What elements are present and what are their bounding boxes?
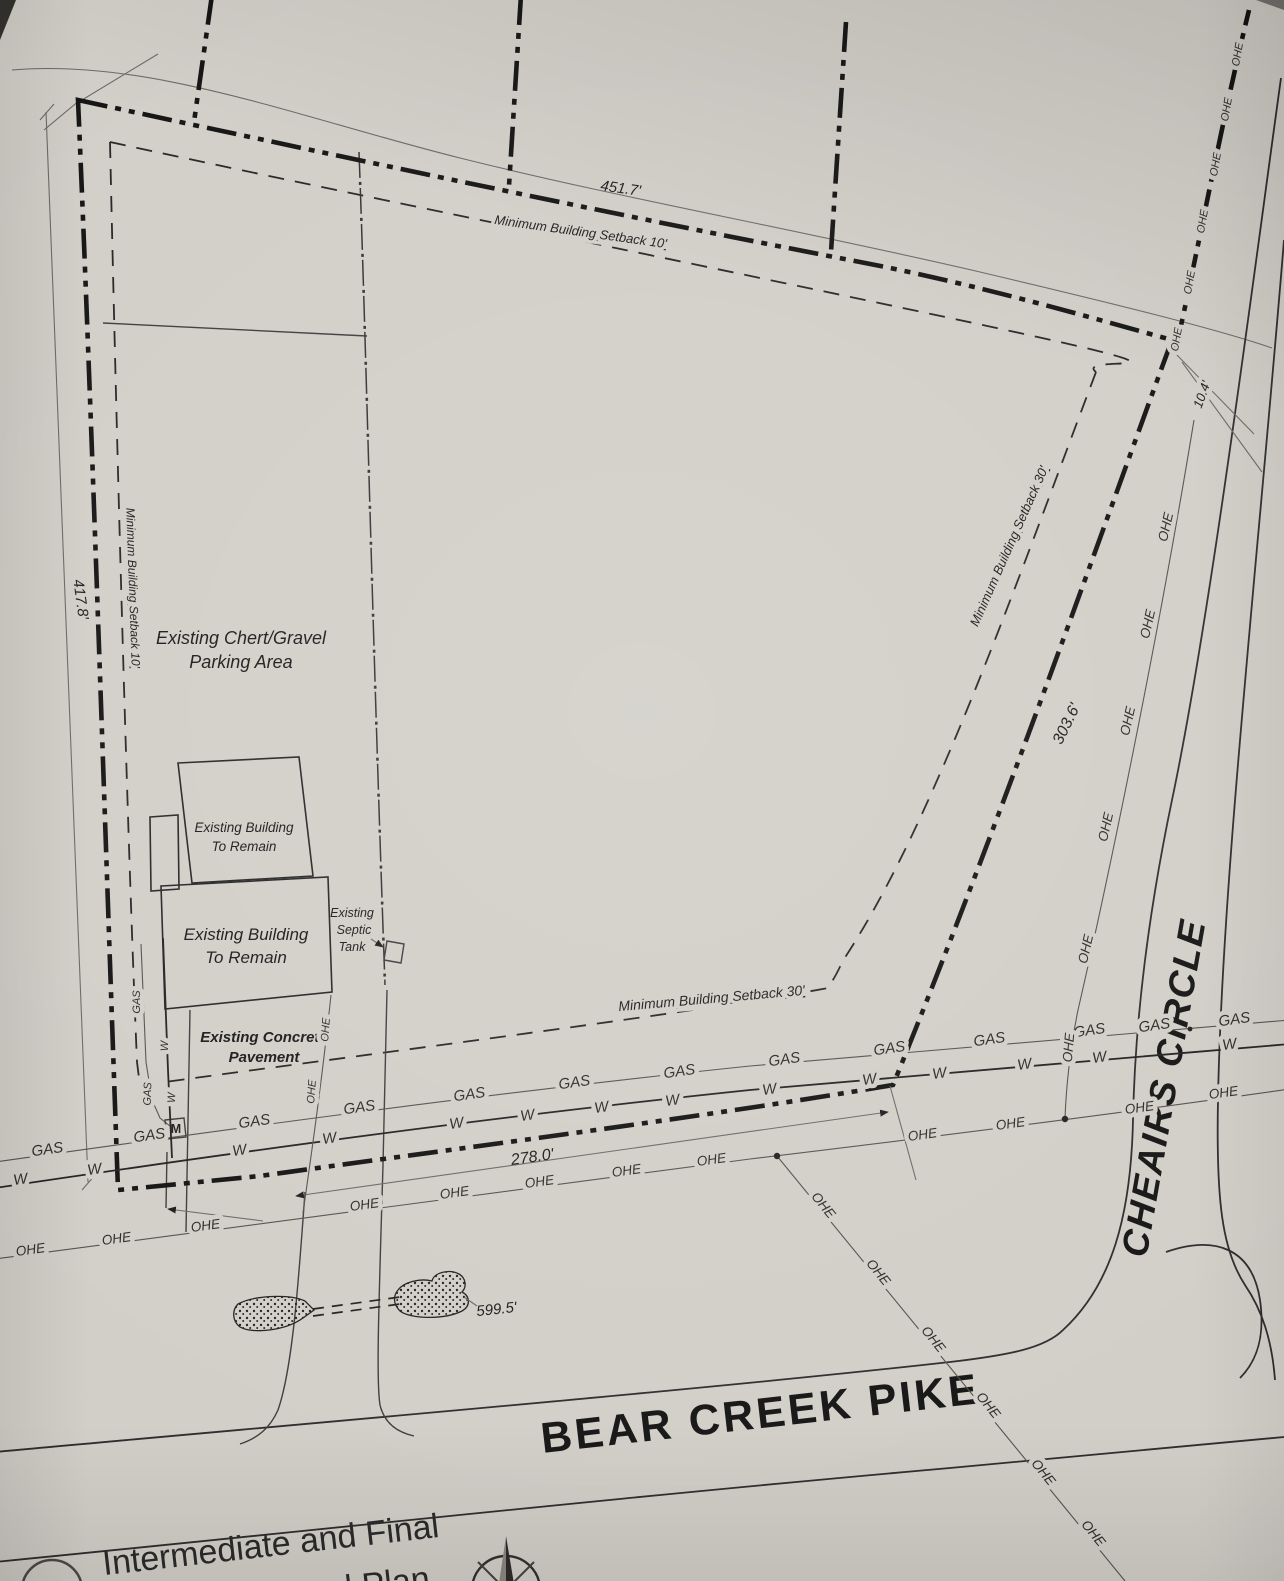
ohe-label: OHE bbox=[995, 1114, 1027, 1133]
roads: BEAR CREEK PIKE CHEAIRS CIRCLE bbox=[0, 78, 1284, 1562]
intersection-corner-curb bbox=[1166, 1245, 1262, 1378]
pavement-label-line2: Pavement bbox=[229, 1049, 301, 1066]
ohe-label: OHE bbox=[1208, 1083, 1240, 1102]
culvert-dash-line-2 bbox=[313, 1304, 400, 1316]
ohe-branch-label: OHE bbox=[808, 1189, 839, 1222]
ohe-branch-label: OHE bbox=[1028, 1456, 1059, 1489]
ohe-label: OHE bbox=[101, 1229, 133, 1248]
water-label: W bbox=[86, 1160, 104, 1179]
ohe-northeast-label: OHE bbox=[1208, 151, 1224, 177]
ohe-northeast-label: OHE bbox=[1230, 41, 1246, 67]
west-dimension: 417.8' bbox=[69, 578, 92, 621]
ohe-label: OHE bbox=[696, 1150, 728, 1169]
ohe-east-label: OHE bbox=[1095, 810, 1116, 843]
corner-dim-line-2 bbox=[1182, 362, 1262, 472]
frontage-dimension: 278.0' bbox=[509, 1146, 556, 1169]
west-dim-tick-top bbox=[40, 104, 54, 120]
photo-corner-dark bbox=[0, 0, 16, 40]
water-label: W bbox=[1091, 1048, 1109, 1067]
pavement-edge-line bbox=[186, 1010, 190, 1232]
corner-extension-line bbox=[44, 100, 80, 130]
fence-line bbox=[359, 152, 385, 985]
boundary-stub-1 bbox=[194, 0, 212, 122]
gas-fitting-dot bbox=[1188, 1027, 1193, 1032]
buildings: Existing Building To Remain Existing Bui… bbox=[150, 757, 404, 1009]
property-boundary bbox=[78, 0, 1249, 1190]
septic-label-line2: Septic bbox=[337, 923, 372, 937]
parking-label-line2: Parking Area bbox=[189, 652, 292, 672]
parking-label-line1: Existing Chert/Gravel bbox=[156, 628, 327, 648]
ohe-northeast-label: OHE bbox=[1219, 96, 1235, 122]
corner-dimension: 10.4' bbox=[1190, 378, 1214, 410]
pavement-label-line1: Existing Concrete bbox=[200, 1029, 328, 1046]
building-lower-label-line1: Existing Building bbox=[184, 925, 309, 944]
photo-corner-dark-2 bbox=[1256, 0, 1284, 10]
bear-creek-pike-north-edge bbox=[0, 78, 1281, 1452]
building-upper-label-line2: To Remain bbox=[212, 839, 277, 854]
photo-artifacts bbox=[0, 0, 1284, 40]
gas-label: GAS bbox=[973, 1029, 1007, 1050]
gas-label: GAS bbox=[663, 1061, 697, 1082]
gas-label: GAS bbox=[1073, 1020, 1107, 1041]
water-label: W bbox=[593, 1098, 611, 1117]
legend-symbol-circle bbox=[22, 1560, 82, 1581]
water-label: W bbox=[12, 1170, 30, 1189]
title-block: Intermediate and Final Control Plan bbox=[22, 1507, 540, 1581]
ohe-northeast-label: OHE bbox=[1182, 269, 1198, 295]
ohe-service-label: OHE bbox=[305, 1079, 319, 1104]
boundary-stub-3 bbox=[831, 22, 846, 252]
gas-service-label: GAS bbox=[142, 1081, 155, 1105]
gas-label: GAS bbox=[558, 1072, 592, 1093]
pavement-corner-line bbox=[166, 1152, 167, 1208]
ohe-northeast-label: OHE bbox=[1169, 326, 1185, 352]
contour-line bbox=[12, 68, 1272, 348]
setback-label-south: Minimum Building Setback 30' bbox=[618, 982, 807, 1014]
utilities-ohe: OHE OHE OHE OHE OHE OHE OHE OHE OHE OHE … bbox=[0, 41, 1284, 1581]
water-label: W bbox=[1016, 1055, 1034, 1074]
utilities-water: W W W W W W W W W W W W W W W W bbox=[0, 938, 1284, 1189]
setback-30-east-south bbox=[165, 372, 1096, 1082]
boundary-stub-2 bbox=[509, 0, 521, 186]
gas-main-line bbox=[0, 1020, 1284, 1162]
ohe-branch-label: OHE bbox=[1078, 1517, 1109, 1550]
gas-service-label: GAS bbox=[131, 990, 143, 1014]
septic-leader-line bbox=[371, 939, 383, 947]
water-service-label: W bbox=[159, 1039, 171, 1051]
rip-rap-east bbox=[394, 1272, 468, 1318]
water-label: W bbox=[664, 1091, 682, 1110]
ohe-east-label: OHE bbox=[1075, 932, 1096, 965]
ohe-branch-label: OHE bbox=[918, 1323, 949, 1356]
site-plan-svg: BEAR CREEK PIKE CHEAIRS CIRCLE Minimum B… bbox=[0, 0, 1284, 1581]
site-plan-photo: BEAR CREEK PIKE CHEAIRS CIRCLE Minimum B… bbox=[0, 0, 1284, 1581]
road-name-bear-creek-pike: BEAR CREEK PIKE bbox=[538, 1365, 982, 1463]
ohe-label: OHE bbox=[190, 1216, 222, 1235]
ohe-service-label: OHE bbox=[319, 1017, 333, 1042]
gas-label: GAS bbox=[343, 1097, 377, 1118]
west-dimension-line bbox=[46, 112, 88, 1182]
parking-north-edge bbox=[103, 323, 367, 336]
ohe-east-label: OHE bbox=[1137, 607, 1158, 640]
water-label: W bbox=[761, 1080, 779, 1099]
building-notch-outline bbox=[150, 815, 179, 891]
ohe-northeast-label: OHE bbox=[1195, 208, 1211, 234]
ohe-label: OHE bbox=[439, 1183, 471, 1202]
driveway-east-edge bbox=[378, 990, 414, 1436]
ohe-label: OHE bbox=[907, 1125, 939, 1144]
culvert-dash-line-1 bbox=[313, 1297, 400, 1309]
ohe-label: OHE bbox=[15, 1240, 47, 1259]
ohe-branch-diagonal bbox=[777, 1156, 1125, 1581]
gas-label: GAS bbox=[1218, 1009, 1252, 1030]
ohe-label: OHE bbox=[524, 1172, 556, 1191]
gas-label: GAS bbox=[873, 1038, 907, 1059]
gas-label: GAS bbox=[238, 1111, 272, 1132]
gas-meter-label: M bbox=[171, 1122, 181, 1136]
parking-area: Existing Chert/Gravel Parking Area bbox=[103, 152, 385, 985]
drive-dimension: 599.5' bbox=[476, 1299, 519, 1320]
water-label: W bbox=[231, 1141, 249, 1160]
building-lower-label-line2: To Remain bbox=[205, 948, 287, 967]
utility-pole-dot bbox=[1062, 1116, 1068, 1122]
utility-pole-dot bbox=[774, 1153, 780, 1159]
setback-label-north: Minimum Building Setback 10' bbox=[494, 212, 669, 251]
ohe-branch-label: OHE bbox=[863, 1256, 894, 1289]
cheairs-circle-east-edge bbox=[1218, 240, 1284, 1380]
building-upper-label-line1: Existing Building bbox=[194, 820, 294, 835]
road-name-cheairs-circle: CHEAIRS CIRCLE bbox=[1114, 916, 1214, 1260]
septic-tank-outline bbox=[384, 941, 404, 963]
ohe-label: OHE bbox=[349, 1195, 381, 1214]
east-dimension: 303.6' bbox=[1050, 700, 1085, 747]
ohe-label: OHE bbox=[611, 1161, 643, 1180]
setback-label-west: Minimum Building Setback 10' bbox=[123, 507, 143, 668]
septic-label-line3: Tank bbox=[339, 940, 366, 954]
water-label: W bbox=[1221, 1035, 1239, 1054]
gas-label: GAS bbox=[453, 1084, 487, 1105]
north-dimension: 451.7' bbox=[599, 177, 642, 200]
water-label: W bbox=[519, 1106, 537, 1125]
north-arrow-compass bbox=[472, 1536, 540, 1581]
setback-10-north bbox=[110, 142, 1130, 372]
gas-label: GAS bbox=[133, 1125, 167, 1146]
rip-rap-west bbox=[234, 1296, 314, 1330]
gas-label: GAS bbox=[31, 1139, 65, 1160]
water-service-label: W bbox=[166, 1091, 178, 1103]
gas-label: GAS bbox=[768, 1049, 802, 1070]
ohe-east-label: OHE bbox=[1060, 1031, 1078, 1062]
ohe-east-label: OHE bbox=[1117, 704, 1138, 737]
septic-label-line1: Existing bbox=[330, 906, 374, 920]
water-label: W bbox=[321, 1129, 339, 1148]
